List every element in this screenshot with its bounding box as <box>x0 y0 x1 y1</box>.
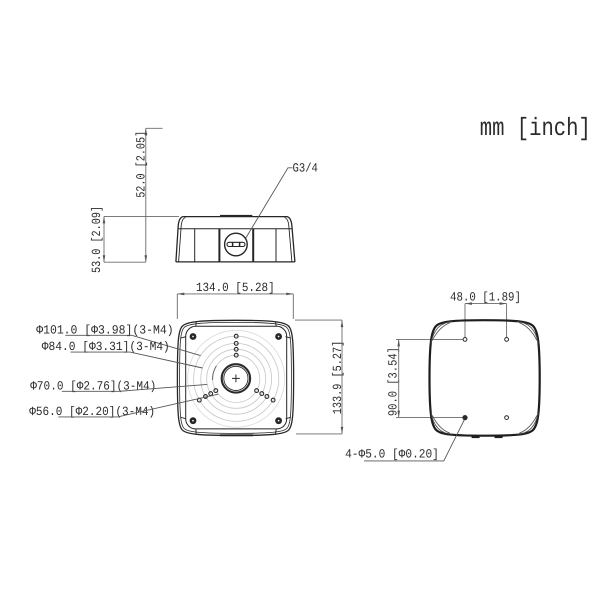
svg-text:mm [inch]: mm [inch] <box>480 114 591 143</box>
svg-text:133.9 [5.27]: 133.9 [5.27] <box>331 341 345 415</box>
svg-text:G3/4: G3/4 <box>293 161 318 175</box>
svg-text:134.0 [5.28]: 134.0 [5.28] <box>196 281 275 295</box>
svg-text:52.0 [2.05]: 52.0 [2.05] <box>135 131 149 198</box>
svg-text:48.0 [1.89]: 48.0 [1.89] <box>450 291 521 305</box>
svg-text:4-Φ5.0 [Φ0.20]: 4-Φ5.0 [Φ0.20] <box>345 448 439 462</box>
svg-text:53.0 [2.09]: 53.0 [2.09] <box>90 206 104 273</box>
